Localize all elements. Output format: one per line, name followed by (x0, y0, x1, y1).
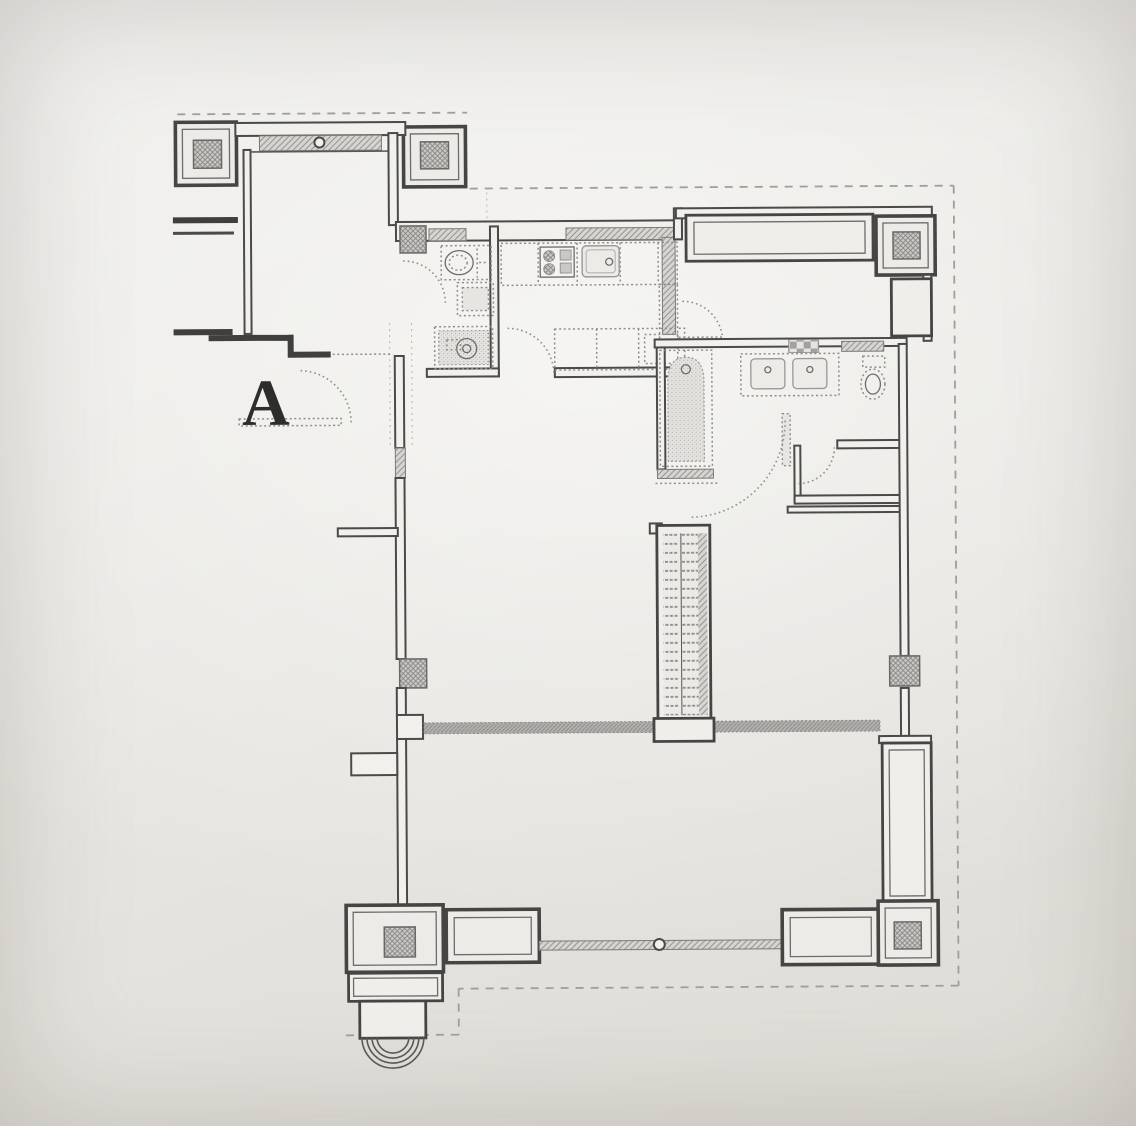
toilet-cistern (477, 248, 487, 277)
tub-apron (657, 469, 713, 478)
shaft-hatch-strip (698, 533, 708, 715)
railing-detail (654, 939, 665, 950)
toilet-zone (441, 245, 491, 279)
toilet-cistern (863, 356, 885, 367)
wall-vent (842, 341, 884, 351)
toilet-bowl (865, 374, 880, 394)
column-core (893, 232, 920, 259)
wall (395, 356, 405, 448)
wall-stub (338, 528, 398, 536)
room-door-swing (682, 301, 722, 341)
bottom-facade (346, 901, 939, 1069)
wc-door-swing (403, 261, 445, 303)
entry-door-swing (299, 370, 351, 422)
window-detail (314, 137, 324, 147)
wall (397, 739, 407, 907)
burner (544, 264, 555, 275)
entry-jog-wall (209, 334, 331, 358)
window (429, 229, 466, 241)
left-wall (337, 356, 428, 908)
cabinet-dividers (597, 329, 639, 370)
top-right-room (676, 207, 936, 346)
wall-bump (397, 715, 423, 739)
boundary-right (954, 186, 959, 986)
column-core (400, 659, 427, 688)
column-core (894, 922, 921, 949)
structural-band (424, 721, 658, 733)
arched-niche-box (360, 1001, 426, 1038)
stair-duct-shaft (650, 523, 714, 741)
wall (395, 478, 405, 659)
wall-inner-line (249, 151, 395, 152)
column-core (890, 656, 920, 686)
vanity-sink (793, 358, 827, 388)
floor-plan-photo: A (0, 0, 1136, 1126)
parapet-wall (235, 122, 405, 136)
column-core (400, 226, 426, 253)
top-left-balcony (175, 121, 466, 227)
burner (560, 263, 571, 273)
bathroom (655, 338, 908, 518)
structural-band (713, 720, 880, 732)
wall (427, 368, 499, 376)
wall (837, 440, 904, 448)
wall (794, 446, 800, 502)
column-core (420, 142, 448, 169)
burner (544, 251, 555, 262)
wall (490, 226, 499, 376)
toilet-bowl (449, 255, 467, 270)
wall (397, 688, 406, 716)
kitchen-door-swing (508, 328, 554, 374)
right-wall (877, 344, 932, 903)
unit-label: A (242, 367, 290, 440)
wall-hatched-strip (395, 448, 405, 478)
wall (788, 506, 905, 513)
shower-tray-inner (462, 287, 488, 310)
kitchen-top-wall (396, 208, 683, 336)
shower-mixer (789, 339, 819, 352)
boundary-top-right (470, 186, 954, 189)
window (566, 227, 674, 240)
floor-plan-drawing: A (0, 0, 1136, 1126)
column-core (193, 140, 221, 168)
wall (901, 688, 909, 736)
toilet (445, 251, 473, 275)
boundary-bottom (459, 986, 959, 989)
wall (795, 495, 905, 504)
washing-machine (439, 330, 489, 364)
column-base (349, 973, 443, 1002)
closet-door-swing (798, 447, 834, 483)
interior-band (424, 720, 880, 734)
duct-box (891, 279, 931, 336)
wall (899, 344, 909, 656)
boundary-top-left (177, 113, 467, 115)
column-core (384, 927, 415, 957)
bathtub (668, 357, 705, 461)
walk-in-closet (787, 440, 904, 513)
wall (243, 150, 251, 334)
vanity-sink (751, 359, 785, 389)
wall-hatched (662, 237, 676, 334)
wall (388, 133, 398, 225)
burner (560, 250, 571, 260)
shaft-base (654, 718, 714, 741)
wall-stub (351, 753, 397, 775)
arched-niche (362, 1037, 424, 1068)
